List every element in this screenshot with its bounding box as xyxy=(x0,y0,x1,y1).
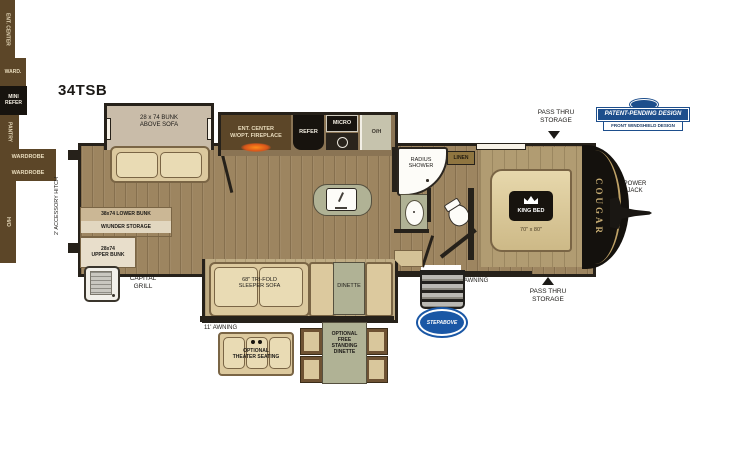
king-bed-label: KING BED xyxy=(509,208,553,214)
micro: MICRO xyxy=(326,115,358,132)
mini-refer: MINI REFER xyxy=(0,86,27,115)
mini-refer-label: MINI REFER xyxy=(5,95,22,107)
arrow-up-icon xyxy=(542,277,554,285)
cupholder-icon xyxy=(258,340,262,344)
cooktop xyxy=(326,133,358,150)
dinette-chair xyxy=(300,356,323,383)
power-jack-icon xyxy=(610,197,652,229)
wardrobe-cabinet: WARD. xyxy=(0,58,26,86)
kitchen-slide: ENT. CENTER W/OPT. FIREPLACE REFER MICRO… xyxy=(218,112,398,156)
lower-bunk-storage-label: W/UNDER STORAGE xyxy=(81,221,171,233)
bunk-slide: 28 x 74 BUNK ABOVE SOFA xyxy=(104,103,214,150)
vanity-sink xyxy=(400,194,428,231)
refer: REFER xyxy=(293,115,324,150)
island-sink xyxy=(326,188,357,211)
ent-center-cabinet: ENT. CENTER xyxy=(0,0,15,58)
king-bed-size: 70" x 80" xyxy=(492,227,570,233)
stepabove-logo-text: STEPABOVE xyxy=(427,320,457,326)
cougar-logo: COUGAR xyxy=(590,157,604,257)
dinette-chair xyxy=(300,328,323,355)
linen-cabinet: LINEN xyxy=(447,151,475,165)
patent-badge-title: PATENT-PENDING DESIGN xyxy=(597,108,689,121)
cooktop-burner-icon xyxy=(337,137,348,148)
entry-steps xyxy=(420,270,465,309)
pantry-label: PANTRY xyxy=(7,122,13,142)
bunk-slide-label: 28 x 74 BUNK ABOVE SOFA xyxy=(107,115,211,129)
micro-label: MICRO xyxy=(333,120,351,126)
free-standing-dinette-label: OPTIONAL FREE STANDING DINETTE xyxy=(323,332,366,356)
dinette-bench xyxy=(309,262,335,317)
wardrobe-small-label: WARD. xyxy=(5,69,22,75)
radius-shower-label: RADIUS SHOWER xyxy=(401,157,441,170)
patent-badge: PATENT-PENDING DESIGN FRONT WINDSHIELD D… xyxy=(597,104,689,132)
kitchen-island xyxy=(313,184,372,216)
dinette-table: DINETTE xyxy=(333,262,365,315)
front-cap: COUGAR xyxy=(582,145,629,269)
wardrobe-top: WARDROBE xyxy=(0,149,56,165)
capital-grill-label: CAPITAL GRILL xyxy=(118,275,168,290)
interior-wall xyxy=(468,188,474,260)
hutch-label: H/O xyxy=(5,217,11,227)
patent-badge-subtitle: FRONT WINDSHIELD DESIGN xyxy=(603,121,683,131)
sleeper-sofa-label: 68" TRI-FOLD SLEEPER SOFA xyxy=(211,277,308,290)
dinette-chair xyxy=(365,356,388,383)
upper-bunk: 28x74 UPPER BUNK xyxy=(80,237,136,268)
dinette-bench xyxy=(365,262,393,317)
crown-icon xyxy=(523,195,539,205)
overhead-cabinet: O/H xyxy=(360,115,391,150)
refer-label: REFER xyxy=(299,129,318,135)
capital-grill-icon xyxy=(84,266,120,302)
ent-center-fireplace-label: ENT. CENTER W/OPT. FIREPLACE xyxy=(230,126,282,139)
free-standing-dinette-table: OPTIONAL FREE STANDING DINETTE xyxy=(322,322,367,384)
cupholder-icon xyxy=(251,340,255,344)
hutch-ho: H/O xyxy=(0,181,16,263)
king-bed-badge: KING BED xyxy=(509,191,553,221)
ent-center-fireplace: ENT. CENTER W/OPT. FIREPLACE xyxy=(221,115,291,150)
interior-wall xyxy=(427,188,431,222)
sofa-dinette-slide: 68" TRI-FOLD SLEEPER SOFA DINETTE xyxy=(202,259,398,323)
fireplace-glow xyxy=(241,143,271,152)
range-stack: MICRO xyxy=(326,115,358,150)
king-bed: KING BED 70" x 80" xyxy=(490,169,572,252)
pantry-cabinet: PANTRY xyxy=(0,115,19,149)
stepabove-logo: STEPABOVE xyxy=(418,309,466,336)
accessory-hitch-label: 2' ACCESSORY HITCH xyxy=(54,160,66,252)
wardrobe-bottom-label: WARDROBE xyxy=(12,170,45,176)
wardrobe-top-label: WARDROBE xyxy=(12,154,45,160)
theater-seating-label: OPTIONAL THEATER SEATING xyxy=(220,349,292,361)
power-jack-label: POWER JACK xyxy=(612,181,658,195)
theater-seating: OPTIONAL THEATER SEATING xyxy=(218,332,294,376)
sleeper-sofa: 68" TRI-FOLD SLEEPER SOFA xyxy=(209,262,310,317)
sofa-under-bunk xyxy=(110,146,210,183)
ent-center-label: ENT. CENTER xyxy=(5,13,11,46)
floorplan-canvas: 34TSB 2' ACCESSORY HITCH COUGAR POWER JA… xyxy=(0,0,731,469)
window xyxy=(476,143,526,150)
wardrobe-bottom: WARDROBE xyxy=(0,165,56,181)
arrow-down-icon xyxy=(548,131,560,139)
lower-bunk: 38x74 LOWER BUNK W/UNDER STORAGE xyxy=(80,207,172,237)
window xyxy=(106,118,111,140)
dinette-chair xyxy=(365,328,388,355)
model-label: 34TSB xyxy=(58,82,107,100)
pass-thru-storage-label-bottom: PASS THRU STORAGE xyxy=(512,288,584,303)
lower-bunk-label: 38x74 LOWER BUNK xyxy=(81,208,171,221)
window xyxy=(207,118,212,140)
interior-wall xyxy=(394,229,429,233)
pass-thru-storage-label-top: PASS THRU STORAGE xyxy=(520,109,592,124)
